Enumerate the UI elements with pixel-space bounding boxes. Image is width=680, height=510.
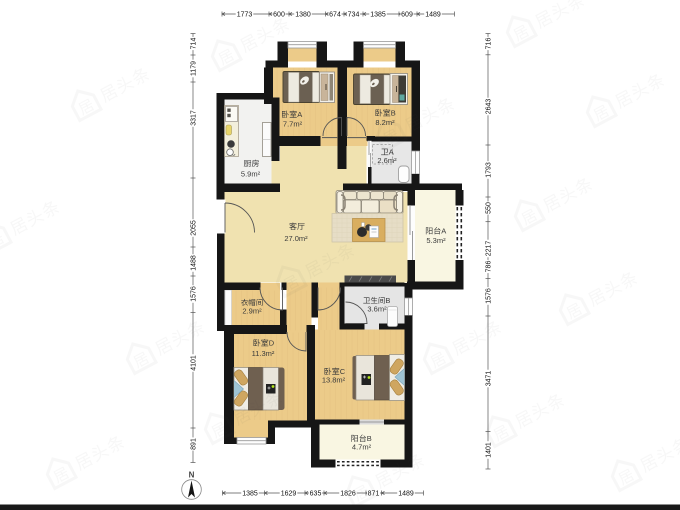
svg-text:2.6m²: 2.6m² bbox=[377, 156, 397, 165]
svg-text:N: N bbox=[189, 471, 195, 480]
svg-text:1385: 1385 bbox=[242, 490, 258, 497]
svg-text:5.3m²: 5.3m² bbox=[426, 236, 446, 245]
svg-text:5.9m²: 5.9m² bbox=[241, 169, 261, 178]
svg-text:13.8m²: 13.8m² bbox=[322, 375, 346, 384]
svg-text:1385: 1385 bbox=[370, 11, 386, 18]
svg-text:609: 609 bbox=[401, 11, 413, 18]
svg-text:734: 734 bbox=[348, 11, 360, 18]
svg-text:2217: 2217 bbox=[485, 241, 492, 257]
svg-text:1576: 1576 bbox=[485, 288, 492, 304]
svg-text:1401: 1401 bbox=[485, 442, 492, 458]
svg-text:716: 716 bbox=[485, 38, 492, 50]
svg-text:A: A bbox=[441, 226, 446, 235]
svg-text:D: D bbox=[269, 338, 275, 347]
svg-text:891: 891 bbox=[190, 438, 197, 450]
svg-text:B: B bbox=[391, 108, 396, 117]
svg-text:1488: 1488 bbox=[190, 255, 197, 271]
svg-text:1489: 1489 bbox=[425, 11, 441, 18]
svg-text:3317: 3317 bbox=[190, 110, 197, 126]
svg-text:1576: 1576 bbox=[190, 286, 197, 302]
svg-text:786: 786 bbox=[485, 261, 492, 273]
svg-text:1179: 1179 bbox=[190, 61, 197, 76]
svg-text:550: 550 bbox=[485, 202, 492, 214]
svg-text:674: 674 bbox=[329, 11, 341, 18]
svg-text:1489: 1489 bbox=[398, 490, 414, 497]
svg-text:4101: 4101 bbox=[190, 355, 197, 371]
svg-text:714: 714 bbox=[190, 38, 197, 50]
svg-text:27.0m²: 27.0m² bbox=[284, 234, 308, 243]
svg-text:7.7m²: 7.7m² bbox=[283, 119, 303, 128]
svg-text:1629: 1629 bbox=[281, 490, 297, 497]
svg-text:3471: 3471 bbox=[485, 371, 492, 387]
svg-text:1773: 1773 bbox=[237, 11, 253, 18]
svg-text:2055: 2055 bbox=[190, 220, 197, 236]
svg-text:4.7m²: 4.7m² bbox=[352, 442, 372, 451]
svg-text:1793: 1793 bbox=[485, 162, 492, 178]
svg-text:600: 600 bbox=[273, 11, 285, 18]
svg-text:3.6m²: 3.6m² bbox=[367, 304, 387, 313]
svg-text:635: 635 bbox=[310, 490, 322, 497]
svg-text:A: A bbox=[297, 110, 302, 119]
svg-text:2643: 2643 bbox=[485, 99, 492, 115]
svg-text:1380: 1380 bbox=[295, 11, 311, 18]
svg-text:2.9m²: 2.9m² bbox=[242, 306, 262, 315]
svg-text:11.3m²: 11.3m² bbox=[252, 349, 275, 358]
